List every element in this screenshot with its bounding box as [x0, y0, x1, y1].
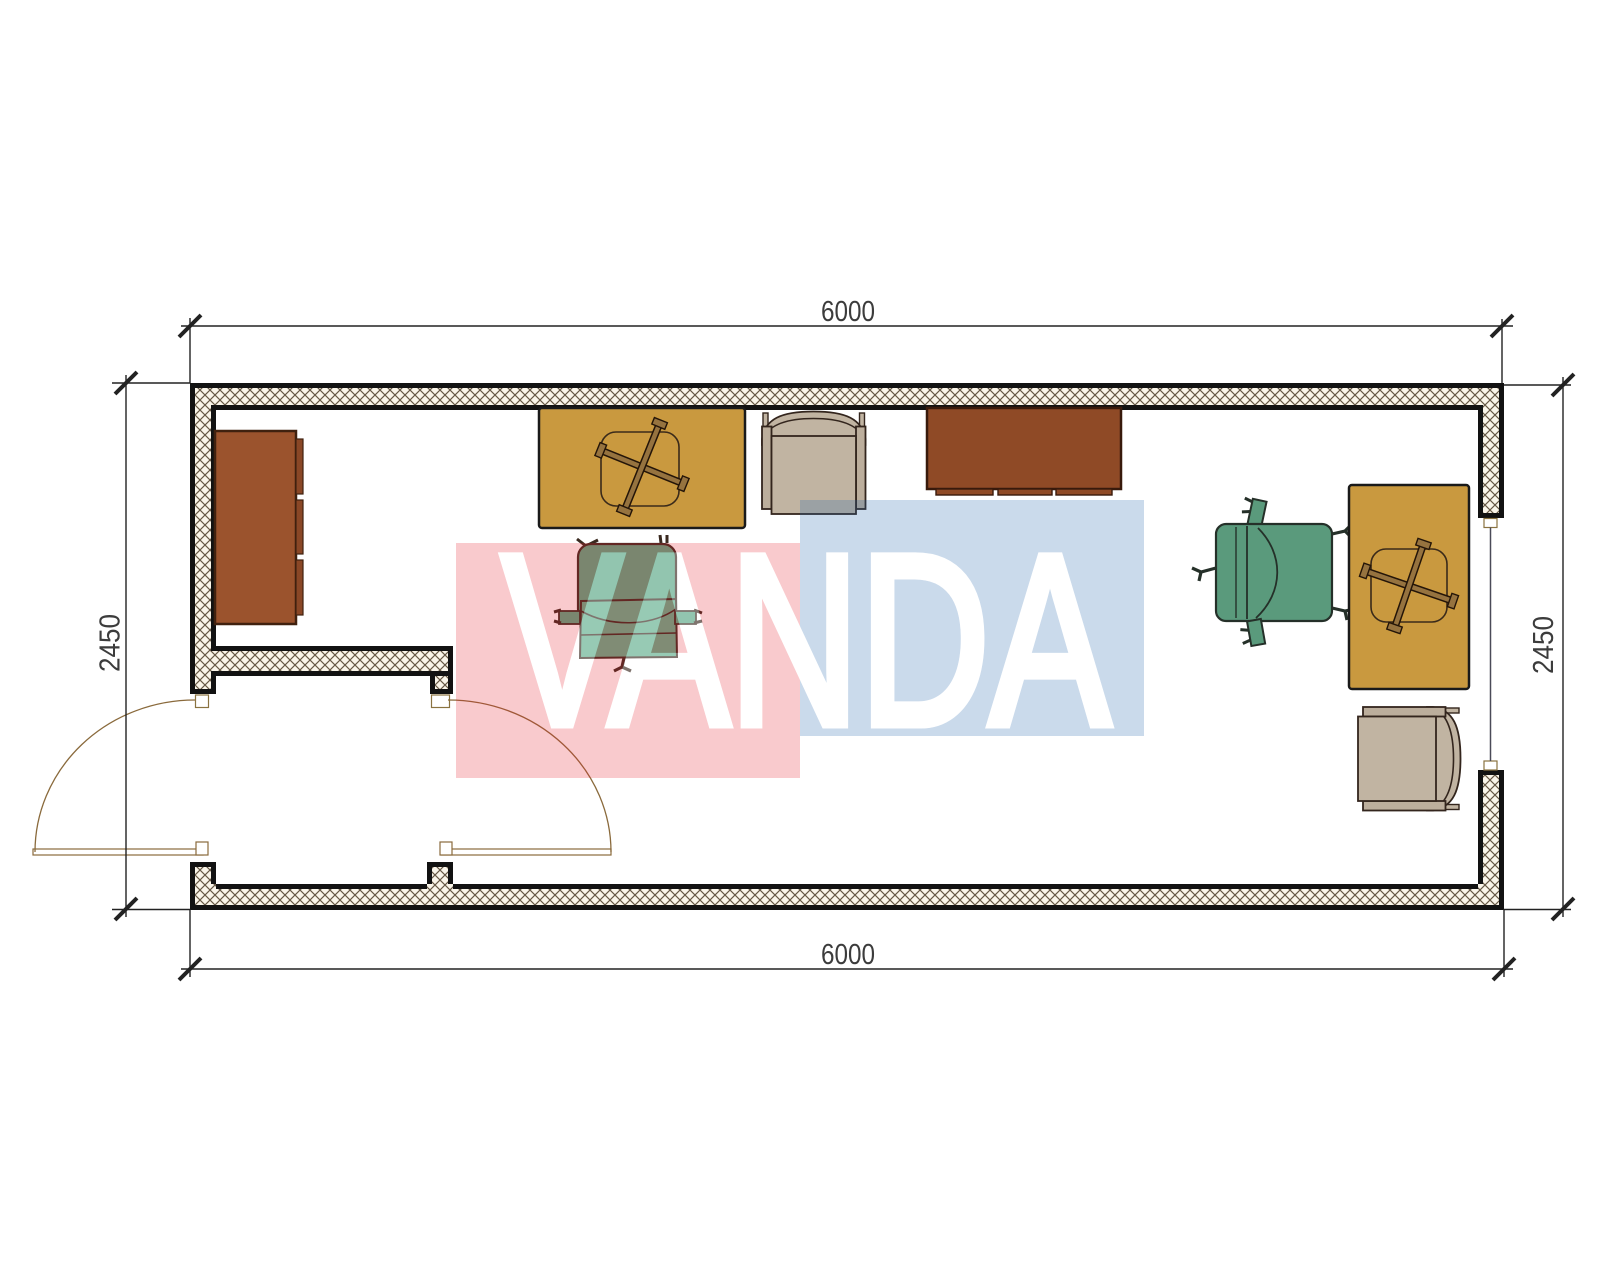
- svg-text:2450: 2450: [1528, 616, 1560, 674]
- svg-text:6000: 6000: [821, 939, 875, 971]
- svg-text:2450: 2450: [95, 614, 127, 672]
- svg-text:6000: 6000: [821, 296, 875, 328]
- svg-text:VANDA: VANDA: [502, 505, 1110, 776]
